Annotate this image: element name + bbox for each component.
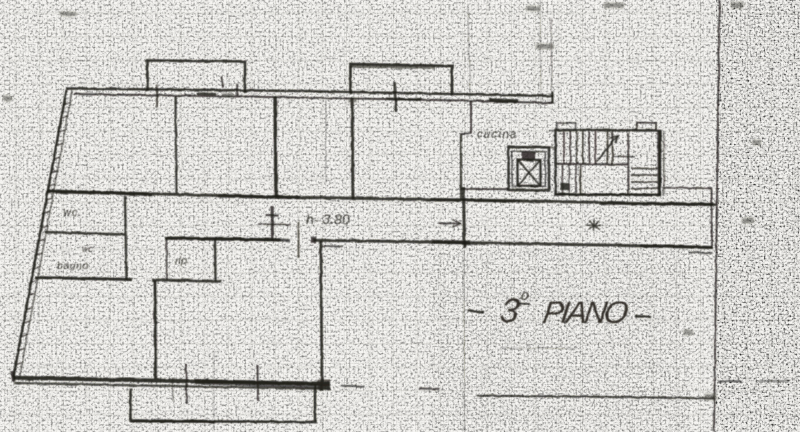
svg-text:cucina: cucina <box>477 129 517 141</box>
svg-text:rip.: rip. <box>175 255 190 267</box>
svg-text:bagno: bagno <box>57 260 89 272</box>
svg-text:wc: wc <box>82 244 93 254</box>
svg-text:PIANO: PIANO <box>541 295 630 330</box>
svg-text:wc.: wc. <box>63 207 83 219</box>
svg-text:h- 3.80: h- 3.80 <box>306 211 350 227</box>
